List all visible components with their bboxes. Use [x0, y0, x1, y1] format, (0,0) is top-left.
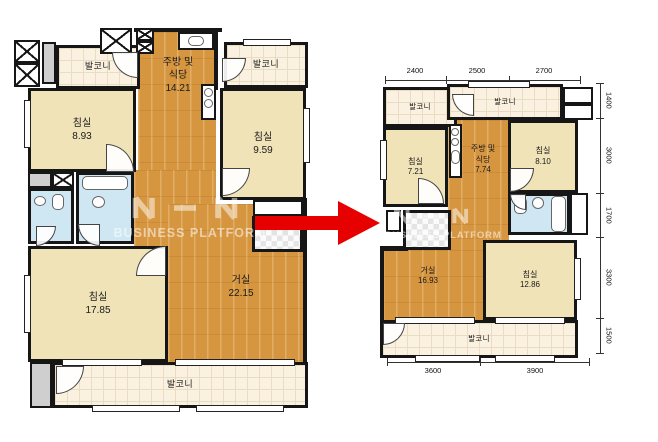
window	[92, 405, 180, 412]
right-balcony-bottom: 발코니	[380, 320, 578, 358]
burner-icon	[204, 99, 213, 108]
dimension-tick	[446, 76, 447, 84]
bathtub-icon	[551, 196, 566, 232]
living-label: 거실	[421, 266, 436, 276]
dimension-value: 1500	[603, 315, 615, 355]
wall-segment	[380, 250, 384, 322]
dimension-tick	[480, 358, 481, 366]
duct-closet	[42, 42, 56, 84]
transform-arrow-shaft	[255, 216, 341, 230]
dimension-tick	[589, 358, 590, 366]
basin-icon	[532, 197, 544, 209]
room-area: 12.86	[520, 280, 540, 290]
kitchen-label-line1: 주방 및	[163, 56, 193, 69]
shaft-x-icon	[14, 40, 40, 63]
right-balcony-top-left: 발코니	[383, 87, 457, 127]
watermark-text: BUSINESS PLATFORM	[110, 226, 270, 240]
closet	[570, 193, 588, 235]
duct-closet	[30, 362, 52, 408]
kitchen-label-line1: 주방 및	[471, 144, 495, 154]
left-living-label: 거실 22.15	[206, 270, 276, 304]
window	[303, 108, 310, 163]
right-living-label: 거실 16.93	[403, 262, 453, 290]
closet	[563, 87, 593, 104]
room-label: 침실	[89, 291, 107, 304]
entry-closet	[253, 200, 303, 216]
room-label: 침실	[254, 131, 272, 144]
burner-icon	[204, 88, 213, 97]
room-label: 발코니	[167, 379, 193, 391]
watermark-logo	[392, 206, 470, 226]
dimension-value: 1700	[603, 195, 615, 235]
window	[415, 355, 480, 362]
burner-icon	[451, 128, 459, 136]
floorplan-comparison-image: 발코니 발코니 발코니 침실 8.93 침실 9.59 침실 17.85 주방 …	[0, 0, 658, 442]
room-label: 침실	[408, 157, 423, 167]
dimension-value: 1400	[603, 80, 615, 120]
dimension-tick	[596, 193, 604, 194]
room-label: 침실	[523, 270, 538, 280]
dimension-tick	[596, 237, 604, 238]
kitchen-label-line2: 식당	[169, 69, 187, 82]
room-label: 발코니	[468, 334, 490, 344]
dimension-value: 3300	[603, 257, 615, 297]
window	[495, 317, 565, 324]
watermark-text: BUSINESS PLATFORM	[383, 230, 503, 241]
window	[380, 140, 387, 180]
shaft-x-icon	[52, 172, 74, 188]
dimension-value: 3600	[413, 366, 453, 375]
dimension-line-right	[600, 83, 601, 353]
window	[495, 355, 555, 362]
room-label: 발코니	[253, 59, 279, 71]
dimension-value: 3900	[515, 366, 555, 375]
window	[24, 275, 31, 333]
wall-segment	[214, 30, 218, 90]
bathtub-icon	[82, 176, 128, 190]
window	[468, 81, 530, 88]
right-kitchen-label: 주방 및 식당 7.74	[460, 142, 506, 178]
burner-icon	[451, 138, 459, 146]
window	[196, 405, 284, 412]
room-label: 발코니	[409, 102, 431, 112]
dimension-tick	[580, 76, 581, 84]
basin-icon	[34, 196, 46, 206]
left-balcony-bottom: 발코니	[52, 362, 308, 408]
transform-arrow-head	[338, 201, 380, 245]
kitchen-label-line2: 식당	[476, 155, 491, 165]
toilet-icon	[52, 194, 64, 210]
window	[175, 359, 295, 366]
closet	[563, 104, 593, 120]
dimension-value: 2400	[395, 66, 435, 75]
room-label: 발코니	[85, 61, 111, 73]
window	[62, 359, 142, 366]
room-label: 침실	[73, 117, 91, 130]
watermark-logo	[130, 194, 240, 222]
dimension-line-bottom	[387, 362, 590, 363]
room-area: 8.10	[535, 157, 551, 167]
duct-closet	[28, 172, 52, 188]
dimension-value: 2700	[524, 66, 564, 75]
living-area: 16.93	[418, 276, 438, 286]
room-area: 9.59	[253, 144, 272, 157]
shaft-x-icon	[136, 28, 154, 41]
window	[243, 39, 291, 46]
window	[574, 258, 581, 300]
window	[395, 317, 475, 324]
right-bedroom-3: 침실 12.86	[483, 240, 577, 320]
basin-icon	[92, 196, 105, 208]
kitchen-area: 7.74	[475, 165, 491, 175]
room-area: 8.93	[72, 130, 91, 143]
shaft-x-icon	[100, 28, 132, 54]
dimension-value: 3000	[603, 135, 615, 175]
dimension-tick	[387, 358, 388, 366]
shaft-x-icon	[136, 41, 154, 54]
dimension-tick	[385, 76, 386, 84]
shaft-x-icon	[14, 63, 40, 87]
living-label: 거실	[232, 274, 250, 287]
room-label: 침실	[536, 146, 551, 156]
room-area: 17.85	[85, 304, 110, 317]
dimension-value: 2500	[457, 66, 497, 75]
room-label: 발코니	[494, 97, 516, 107]
kitchen-area: 14.21	[165, 82, 190, 95]
sink-icon	[451, 150, 460, 164]
sink-icon	[188, 36, 204, 46]
room-area: 7.21	[408, 167, 424, 177]
living-area: 22.15	[228, 287, 253, 300]
window	[24, 100, 31, 148]
